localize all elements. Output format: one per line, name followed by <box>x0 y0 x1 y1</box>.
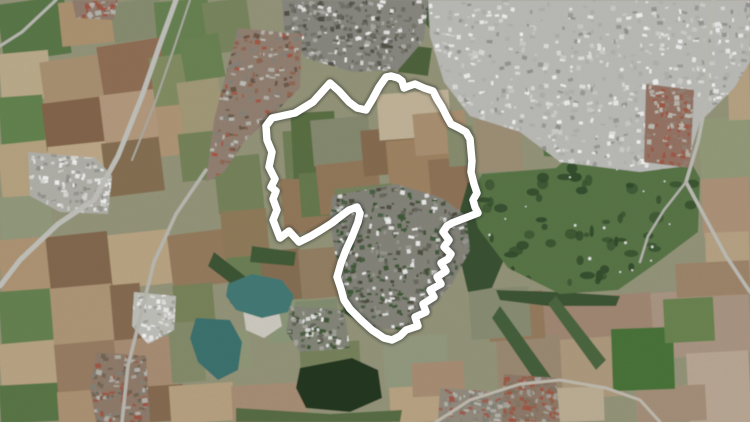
satellite-map-canvas <box>0 0 750 422</box>
photo-grain-overlay <box>0 0 750 422</box>
satellite-map-image <box>0 0 750 422</box>
